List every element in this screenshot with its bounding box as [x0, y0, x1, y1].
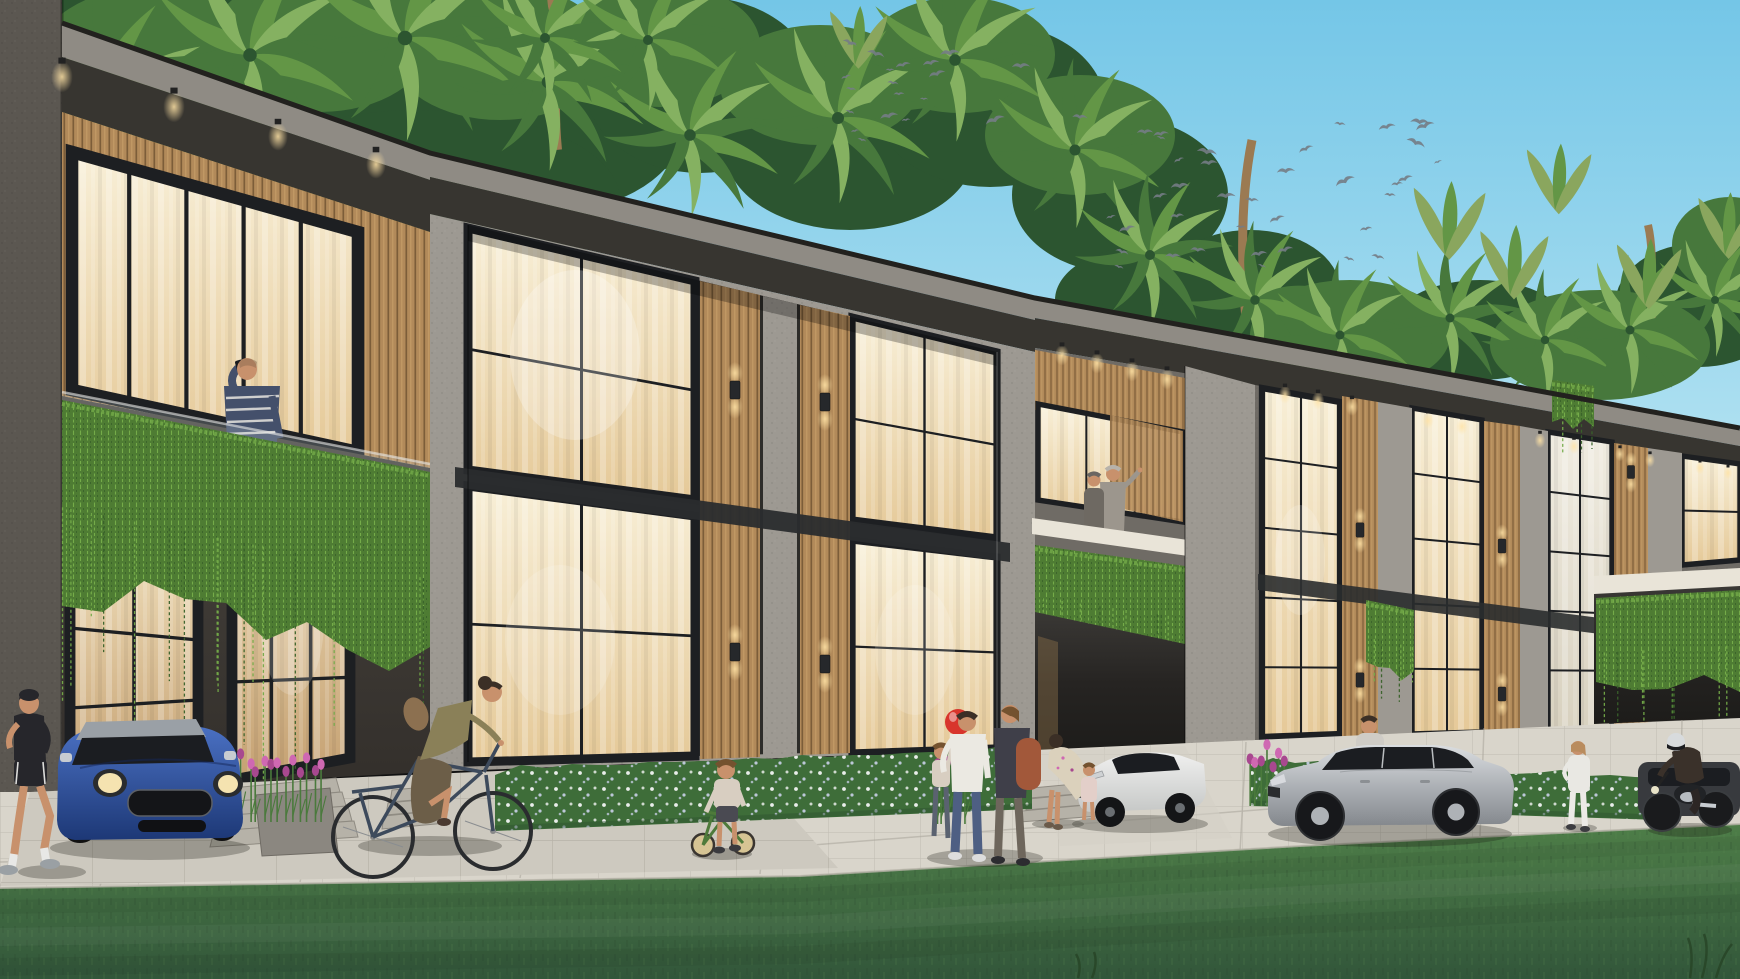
headlight: [98, 773, 122, 793]
rider-jacket: [1672, 747, 1704, 784]
architectural-rendering: [0, 0, 1740, 979]
mini-cooper-car: [57, 719, 243, 843]
cap: [19, 689, 39, 701]
headlamp: [1651, 786, 1659, 794]
window-9: [1412, 408, 1482, 734]
grille: [128, 790, 212, 816]
head: [1049, 734, 1063, 748]
unit-1: [62, 25, 430, 799]
backpack: [1016, 738, 1041, 790]
scene-canvas: [0, 0, 1740, 979]
headlight: [218, 775, 238, 793]
